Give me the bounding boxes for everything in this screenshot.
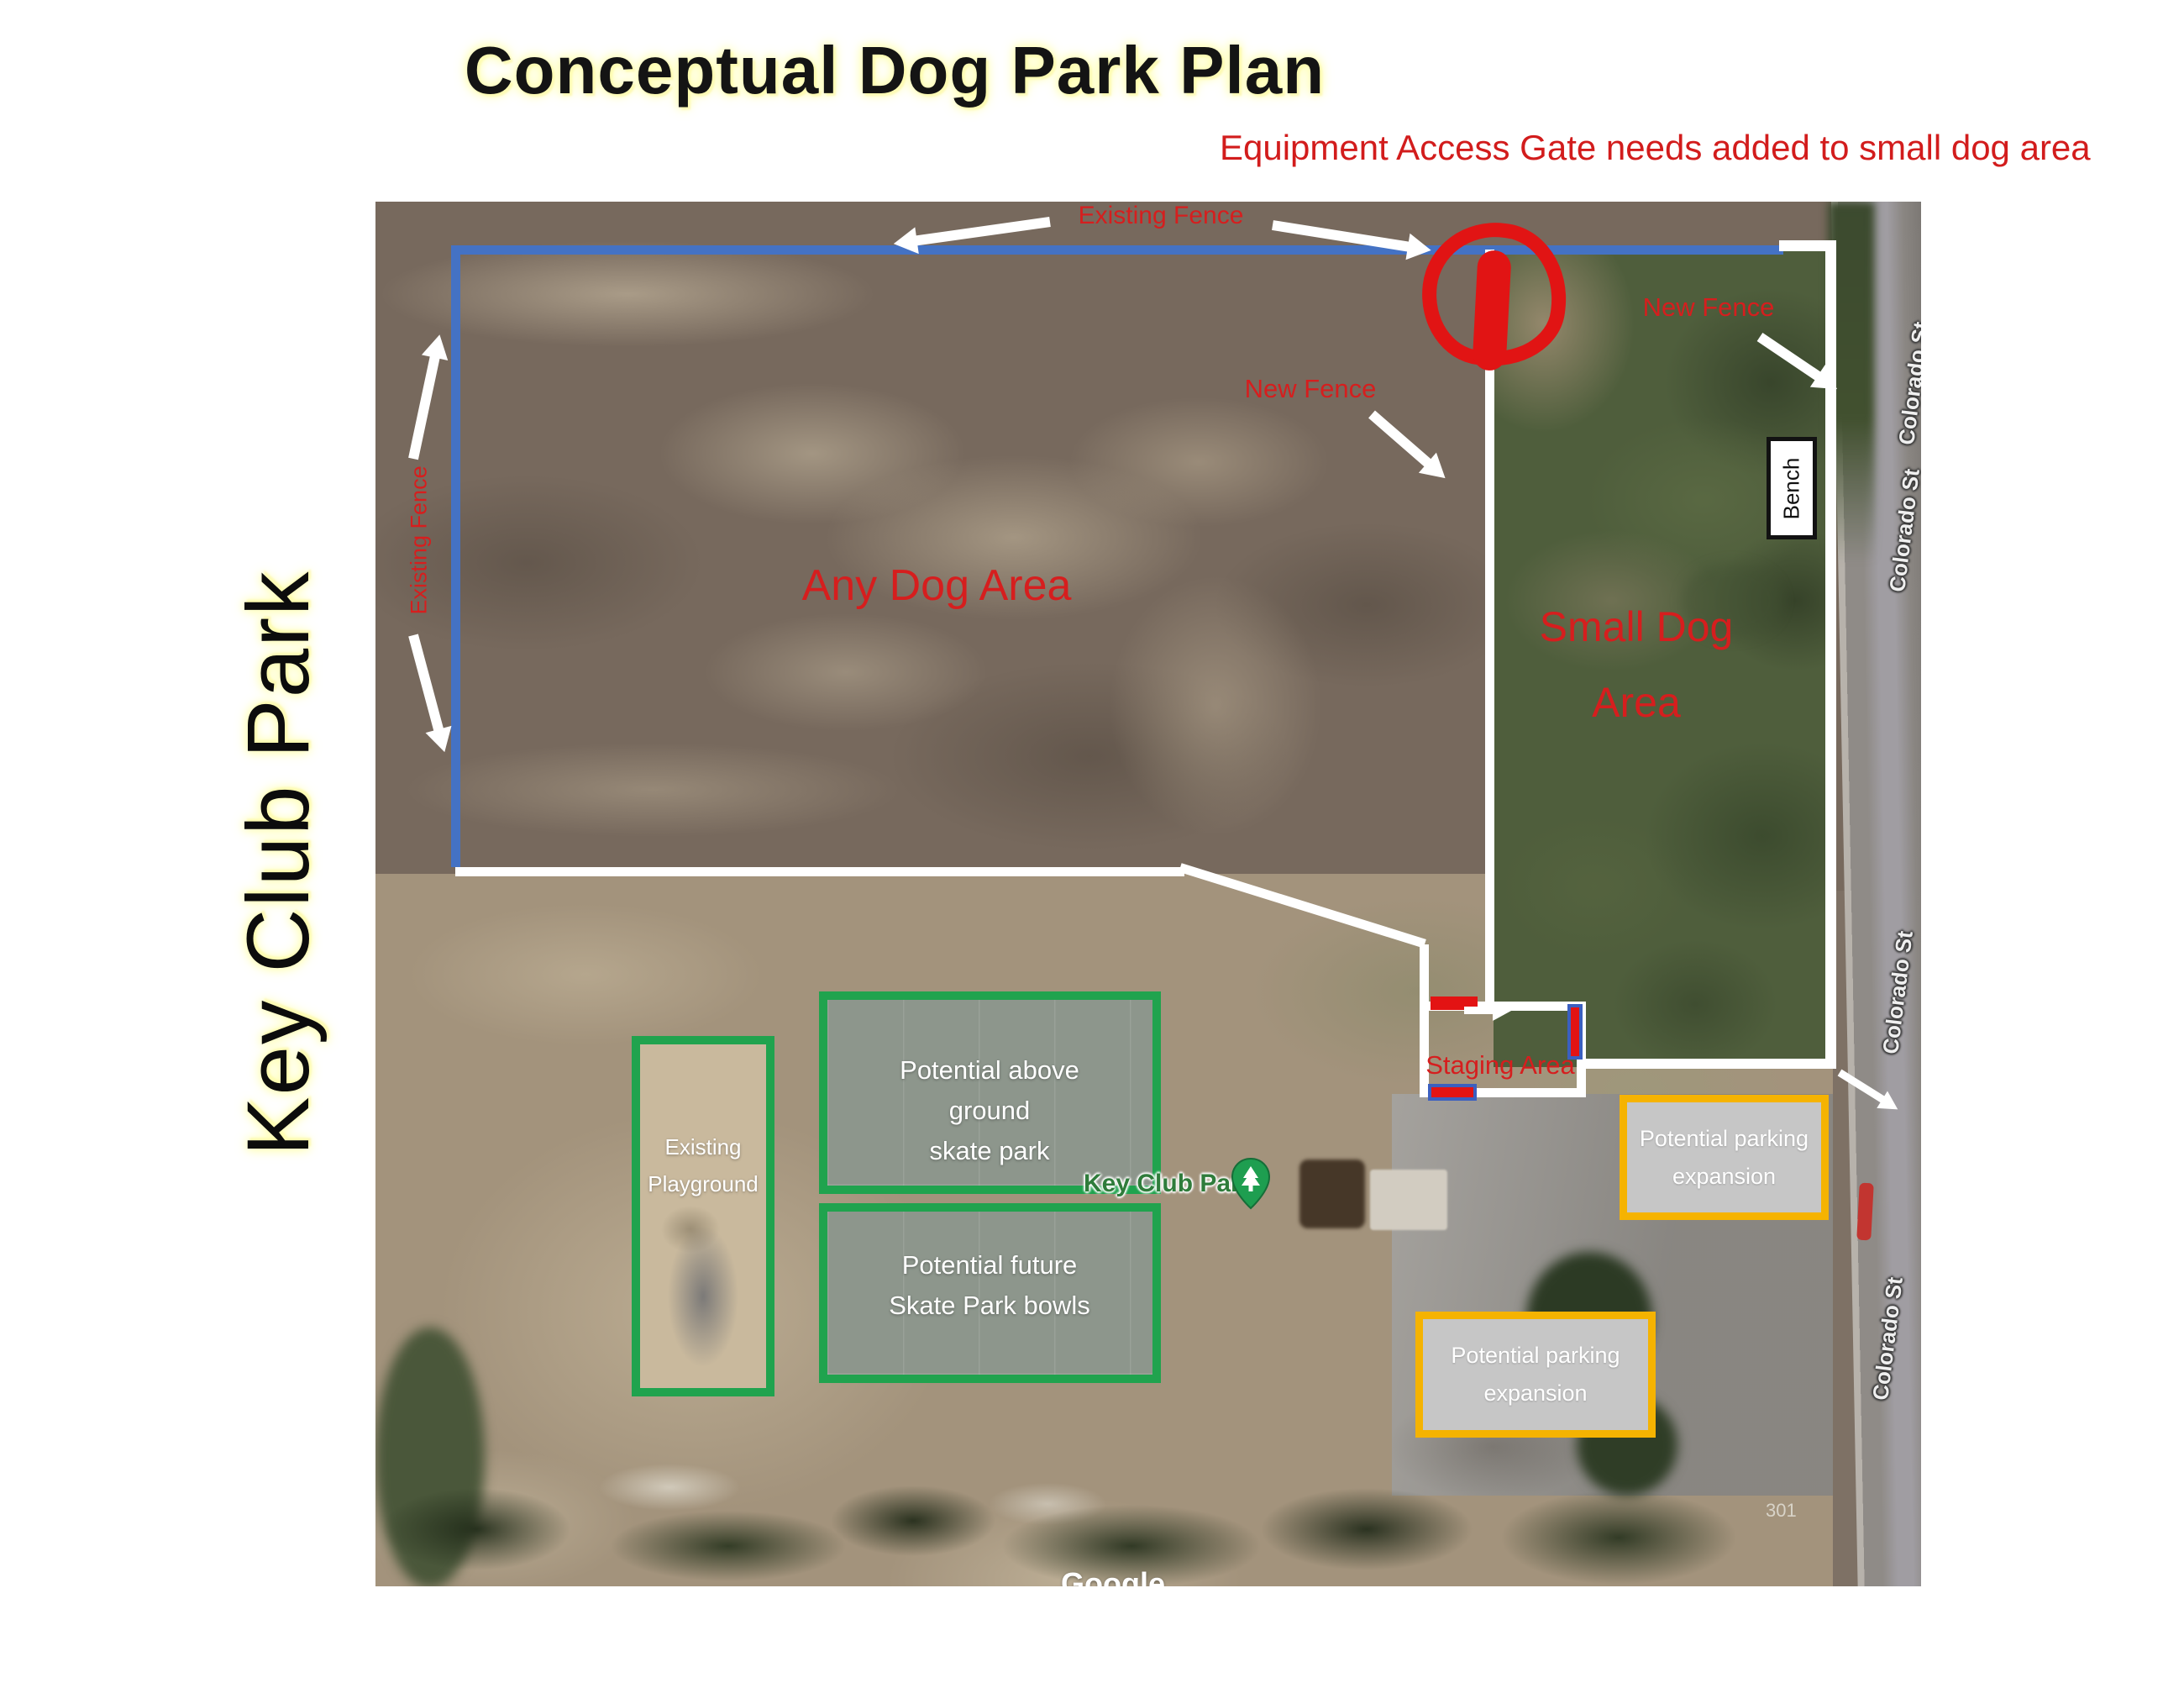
- park-pin-icon: [1231, 1158, 1271, 1210]
- satellite-map: Existing Fence Existing Fence New Fence …: [375, 202, 1921, 1586]
- conceptual-plan-canvas: Conceptual Dog Park Plan Equipment Acces…: [0, 0, 2184, 1688]
- parking-expansion-right: Potential parking expansion: [1620, 1095, 1829, 1220]
- equipment-gate-marker: [1472, 250, 1511, 371]
- bench-marker: Bench: [1767, 437, 1817, 539]
- google-watermark: Google: [1061, 1566, 1165, 1586]
- label-skate-bowls: Potential future Skate Park bowls: [889, 1245, 1090, 1326]
- label-small-dog-area: Small Dog Area: [1540, 589, 1734, 740]
- park-name-label: Key Club Park: [228, 539, 321, 1186]
- label-existing-fence-left: Existing Fence: [407, 476, 428, 615]
- label-small-dog-line2: Area: [1540, 665, 1734, 740]
- label-existing-playground: Existing Playground: [648, 1128, 759, 1202]
- skate-above-line3: skate park: [900, 1131, 1079, 1171]
- label-existing-fence-top: Existing Fence: [1079, 202, 1244, 230]
- skate-bowls-line2: Skate Park bowls: [889, 1286, 1090, 1326]
- fence-line-bottom-right: [1580, 1059, 1832, 1069]
- park-building: [1370, 1170, 1447, 1230]
- playground-line1: Existing: [648, 1128, 759, 1165]
- label-skate-above: Potential above ground skate park: [900, 1050, 1079, 1171]
- parking-expansion-lower: Potential parking expansion: [1415, 1312, 1656, 1438]
- pavilion-roof: [1299, 1160, 1365, 1228]
- playground-line2: Playground: [648, 1165, 759, 1202]
- fence-line-right: [1825, 240, 1836, 1069]
- parcel-number: 301: [1766, 1500, 1797, 1522]
- gate-bar-bottom: [1428, 1084, 1477, 1101]
- arrow-staging-gate-icon: [1464, 1007, 1494, 1014]
- annotation-note: Equipment Access Gate needs added to sma…: [1220, 128, 2091, 168]
- label-new-fence-mid: New Fence: [1245, 374, 1377, 404]
- fence-line-existing-top: [451, 245, 1783, 255]
- label-new-fence-right: New Fence: [1643, 292, 1775, 323]
- label-any-dog-area: Any Dog Area: [802, 560, 1072, 611]
- parking-right-line1: Potential parking: [1627, 1120, 1821, 1158]
- bench-label: Bench: [1779, 457, 1805, 519]
- label-small-dog-line1: Small Dog: [1540, 589, 1734, 665]
- parked-car: [1856, 1183, 1874, 1241]
- parking-lower-line2: expansion: [1423, 1375, 1648, 1412]
- skate-above-line1: Potential above: [900, 1050, 1079, 1091]
- playground-outline: [632, 1036, 774, 1396]
- parking-right-line2: expansion: [1627, 1158, 1821, 1196]
- page-title: Conceptual Dog Park Plan: [336, 32, 1453, 109]
- skate-above-line2: ground: [900, 1091, 1079, 1131]
- skate-bowls-line1: Potential future: [889, 1245, 1090, 1286]
- fence-line-anydog-bottom: [455, 867, 1184, 876]
- poi-key-club-park: Key Club Park: [1084, 1170, 1254, 1198]
- parking-lower-line1: Potential parking: [1423, 1337, 1648, 1375]
- terrain-bottom-trees: [375, 1437, 1854, 1586]
- label-staging-area: Staging Area: [1425, 1050, 1575, 1081]
